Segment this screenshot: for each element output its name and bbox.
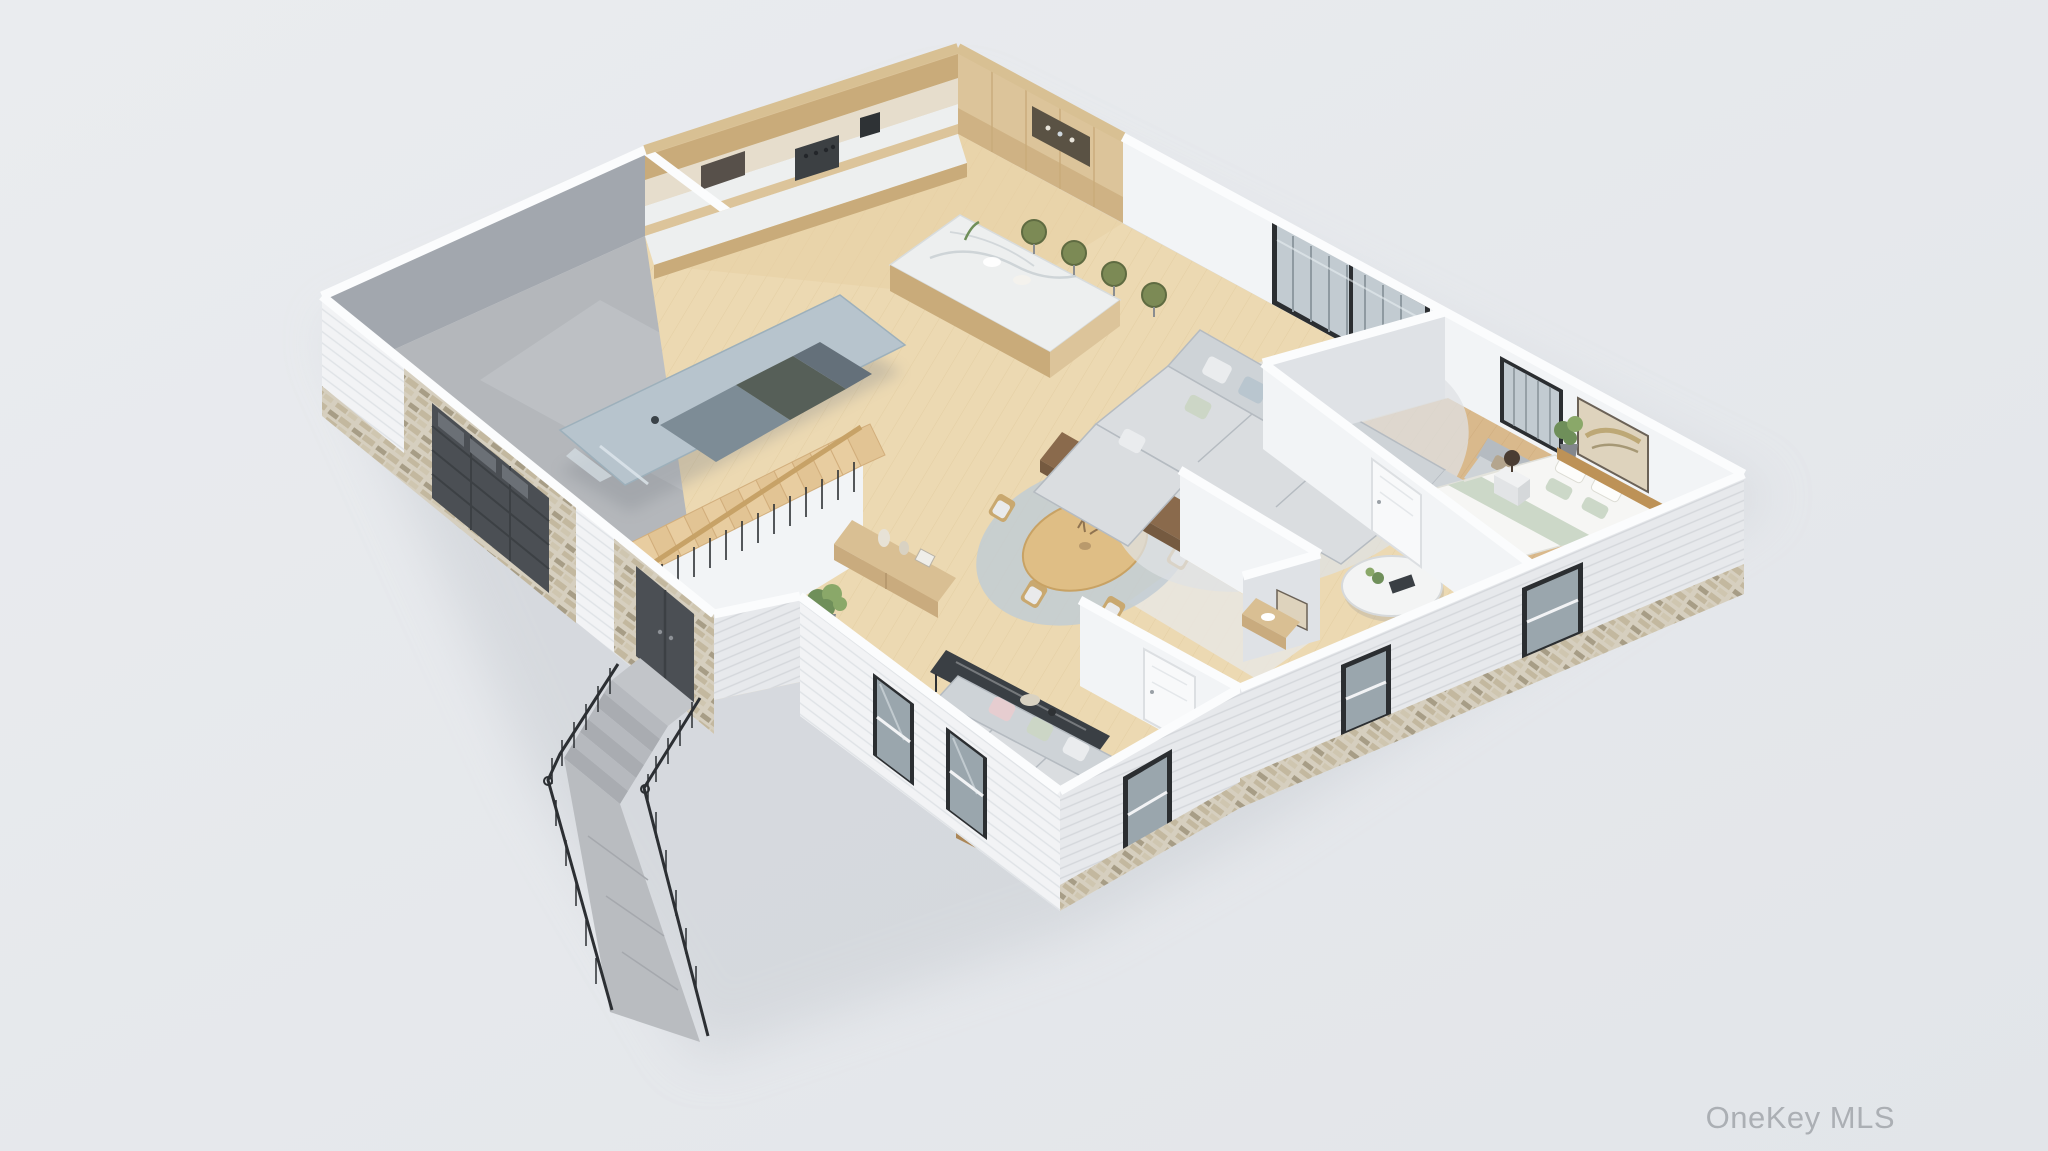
watermark: OneKey MLS	[1706, 1100, 1895, 1135]
floor-plan-svg: OneKey MLS	[0, 0, 2048, 1151]
table-lamp	[1504, 450, 1520, 466]
floor-plan-render: OneKey MLS	[0, 0, 2048, 1151]
car-mirror	[651, 416, 659, 424]
entry-se-wall	[714, 596, 800, 700]
